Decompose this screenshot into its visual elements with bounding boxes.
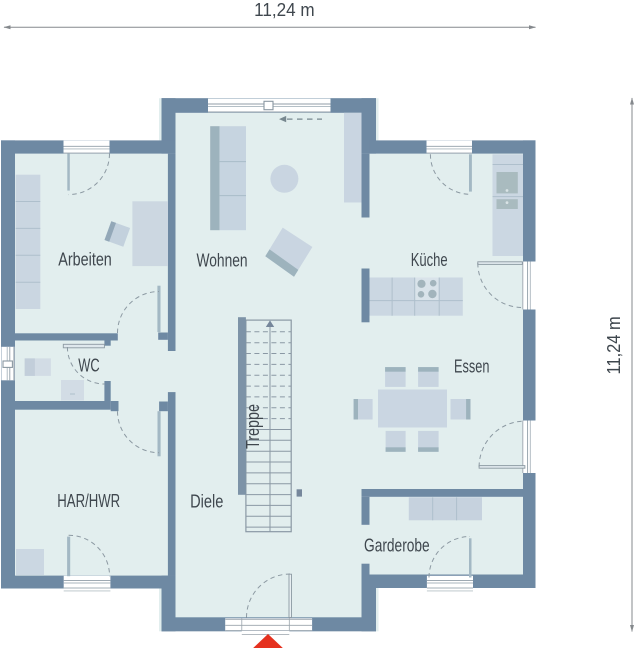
svg-text:Wohnen: Wohnen — [197, 251, 248, 271]
svg-text:Diele: Diele — [190, 492, 223, 512]
svg-text:Treppe: Treppe — [243, 404, 263, 449]
svg-text:11,24 m: 11,24 m — [254, 0, 315, 20]
svg-text:Küche: Küche — [411, 250, 448, 270]
svg-text:Essen: Essen — [454, 357, 489, 377]
svg-text:11,24 m: 11,24 m — [604, 316, 624, 374]
svg-text:HAR/HWR: HAR/HWR — [57, 491, 120, 511]
svg-text:Garderobe: Garderobe — [364, 536, 430, 556]
svg-text:WC: WC — [78, 356, 99, 376]
svg-text:Arbeiten: Arbeiten — [58, 250, 112, 270]
